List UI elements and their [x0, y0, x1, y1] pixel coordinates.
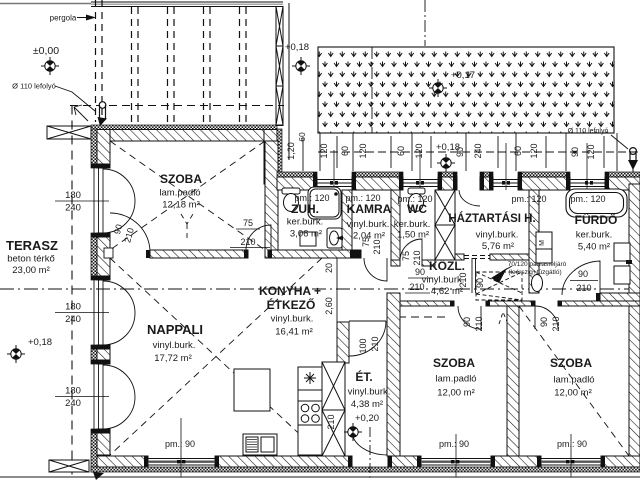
svg-text:180: 180: [65, 302, 81, 313]
svg-text:120: 120: [319, 143, 329, 158]
svg-text:vinyl.burk.: vinyl.burk.: [476, 230, 519, 241]
svg-text:pm.: 120: pm.: 120: [345, 193, 380, 203]
svg-text:ÉTKEZŐ: ÉTKEZŐ: [267, 297, 316, 312]
svg-text:12,00 m²: 12,00 m²: [437, 388, 475, 399]
svg-text:60: 60: [513, 146, 523, 156]
svg-text:vinyl.burk.: vinyl.burk.: [422, 275, 465, 286]
svg-text:FÜRDŐ: FÜRDŐ: [575, 212, 618, 227]
svg-text:HÁZTARTÁSI H.: HÁZTARTÁSI H.: [448, 212, 535, 225]
svg-text:5,40 m²: 5,40 m²: [578, 242, 610, 253]
svg-text:ker.burk.: ker.burk.: [287, 217, 323, 228]
svg-text:90: 90: [475, 278, 485, 288]
svg-text:+0,18: +0,18: [285, 42, 309, 53]
svg-text:KONYHA +: KONYHA +: [259, 284, 321, 298]
svg-text:NAPPALI: NAPPALI: [147, 322, 203, 337]
svg-text:Ø 110 lefolyó: Ø 110 lefolyó: [12, 82, 56, 91]
svg-text:60: 60: [297, 132, 307, 142]
svg-text:100: 100: [358, 338, 368, 353]
svg-text:210: 210: [474, 316, 484, 331]
svg-text:1,20: 1,20: [286, 142, 296, 160]
svg-text:lam.padló: lam.padló: [159, 188, 200, 199]
svg-text:lam.padló: lam.padló: [435, 374, 476, 385]
svg-text:ker.burk.: ker.burk.: [394, 219, 430, 230]
svg-text:3,06 m²: 3,06 m²: [290, 229, 322, 240]
svg-text:60: 60: [396, 146, 406, 156]
svg-text:210: 210: [551, 316, 561, 331]
svg-text:90: 90: [539, 317, 549, 327]
svg-text:+0,18: +0,18: [436, 142, 460, 153]
svg-text:210: 210: [576, 283, 591, 293]
svg-text:2,04 m²: 2,04 m²: [353, 231, 385, 242]
svg-text:75: 75: [401, 251, 411, 261]
svg-text:4,38 m²: 4,38 m²: [351, 399, 383, 410]
svg-text:120: 120: [529, 143, 539, 158]
svg-text:pm.: 120: pm.: 120: [397, 194, 432, 204]
svg-text:12,00 m²: 12,00 m²: [554, 388, 592, 399]
svg-text:vinyl.burk.: vinyl.burk.: [347, 219, 390, 230]
svg-text:240: 240: [65, 314, 81, 325]
svg-text:4,62 m²: 4,62 m²: [431, 286, 463, 297]
svg-text:2,60: 2,60: [324, 297, 334, 315]
svg-text:vinyl.burk.: vinyl.burk.: [271, 314, 314, 325]
svg-text:120: 120: [414, 143, 424, 158]
svg-text:SZOBA: SZOBA: [550, 356, 592, 370]
svg-text:vinyl.burk.: vinyl.burk.: [153, 340, 196, 351]
svg-text:vinyl.burk.: vinyl.burk.: [348, 387, 391, 398]
svg-text:TERASZ: TERASZ: [6, 238, 58, 253]
svg-text:90: 90: [578, 269, 588, 279]
svg-text:SZOBA: SZOBA: [160, 172, 202, 186]
svg-text:Ø 110 lefolyó: Ø 110 lefolyó: [568, 128, 609, 135]
svg-text:1,50 m²: 1,50 m²: [397, 230, 429, 241]
svg-text:beton térkő: beton térkő: [7, 254, 55, 265]
svg-text:pm.: 90: pm.: 90: [165, 439, 195, 449]
svg-text:180: 180: [65, 386, 81, 397]
svg-text:KÖZL.: KÖZL.: [429, 258, 465, 273]
svg-text:pm.: 120: pm.: 120: [294, 193, 329, 203]
svg-text:210: 210: [412, 250, 422, 265]
svg-text:12,18 m²: 12,18 m²: [162, 200, 200, 211]
svg-text:pm.: 90: pm.: 90: [557, 439, 587, 449]
svg-text:+0,20: +0,20: [355, 413, 379, 424]
svg-text:20: 20: [324, 263, 334, 273]
svg-text:KAMRA: KAMRA: [347, 202, 392, 216]
svg-text:lam.padló: lam.padló: [553, 375, 594, 386]
svg-text:17,72 m²: 17,72 m²: [154, 353, 192, 364]
svg-text:5,76 m²: 5,76 m²: [482, 241, 514, 252]
svg-text:60: 60: [340, 146, 350, 156]
svg-text:120: 120: [586, 144, 596, 159]
svg-text:75: 75: [243, 218, 253, 228]
svg-text:23,00 m²: 23,00 m²: [12, 265, 50, 276]
svg-text:16,41 m²: 16,41 m²: [275, 327, 313, 338]
svg-text:180: 180: [65, 190, 81, 201]
svg-text:210: 210: [370, 336, 380, 351]
svg-text:ker.burk.: ker.burk.: [576, 230, 612, 241]
svg-text:±0,00: ±0,00: [33, 45, 59, 57]
svg-text:+0,18: +0,18: [28, 337, 52, 348]
svg-text:210: 210: [372, 239, 382, 254]
svg-text:90: 90: [462, 317, 472, 327]
svg-text:120: 120: [358, 143, 368, 158]
svg-text:240: 240: [473, 143, 483, 158]
svg-text:ZUH.: ZUH.: [291, 202, 319, 216]
svg-text:ÉT.: ÉT.: [355, 369, 372, 384]
svg-text:WC: WC: [407, 202, 427, 216]
svg-text:90: 90: [570, 147, 580, 157]
svg-text:pergola: pergola: [50, 14, 77, 23]
svg-text:M: M: [539, 240, 546, 246]
svg-text:pm.: 120: pm.: 120: [511, 194, 546, 204]
svg-text:SZOBA: SZOBA: [433, 356, 475, 370]
svg-text:240: 240: [65, 203, 81, 214]
svg-text:pm.: 120: pm.: 120: [570, 194, 605, 204]
svg-text:pm.: 90: pm.: 90: [439, 439, 469, 449]
svg-text:240: 240: [65, 398, 81, 409]
svg-text:+0,17: +0,17: [451, 70, 475, 81]
svg-text:210: 210: [326, 414, 336, 429]
